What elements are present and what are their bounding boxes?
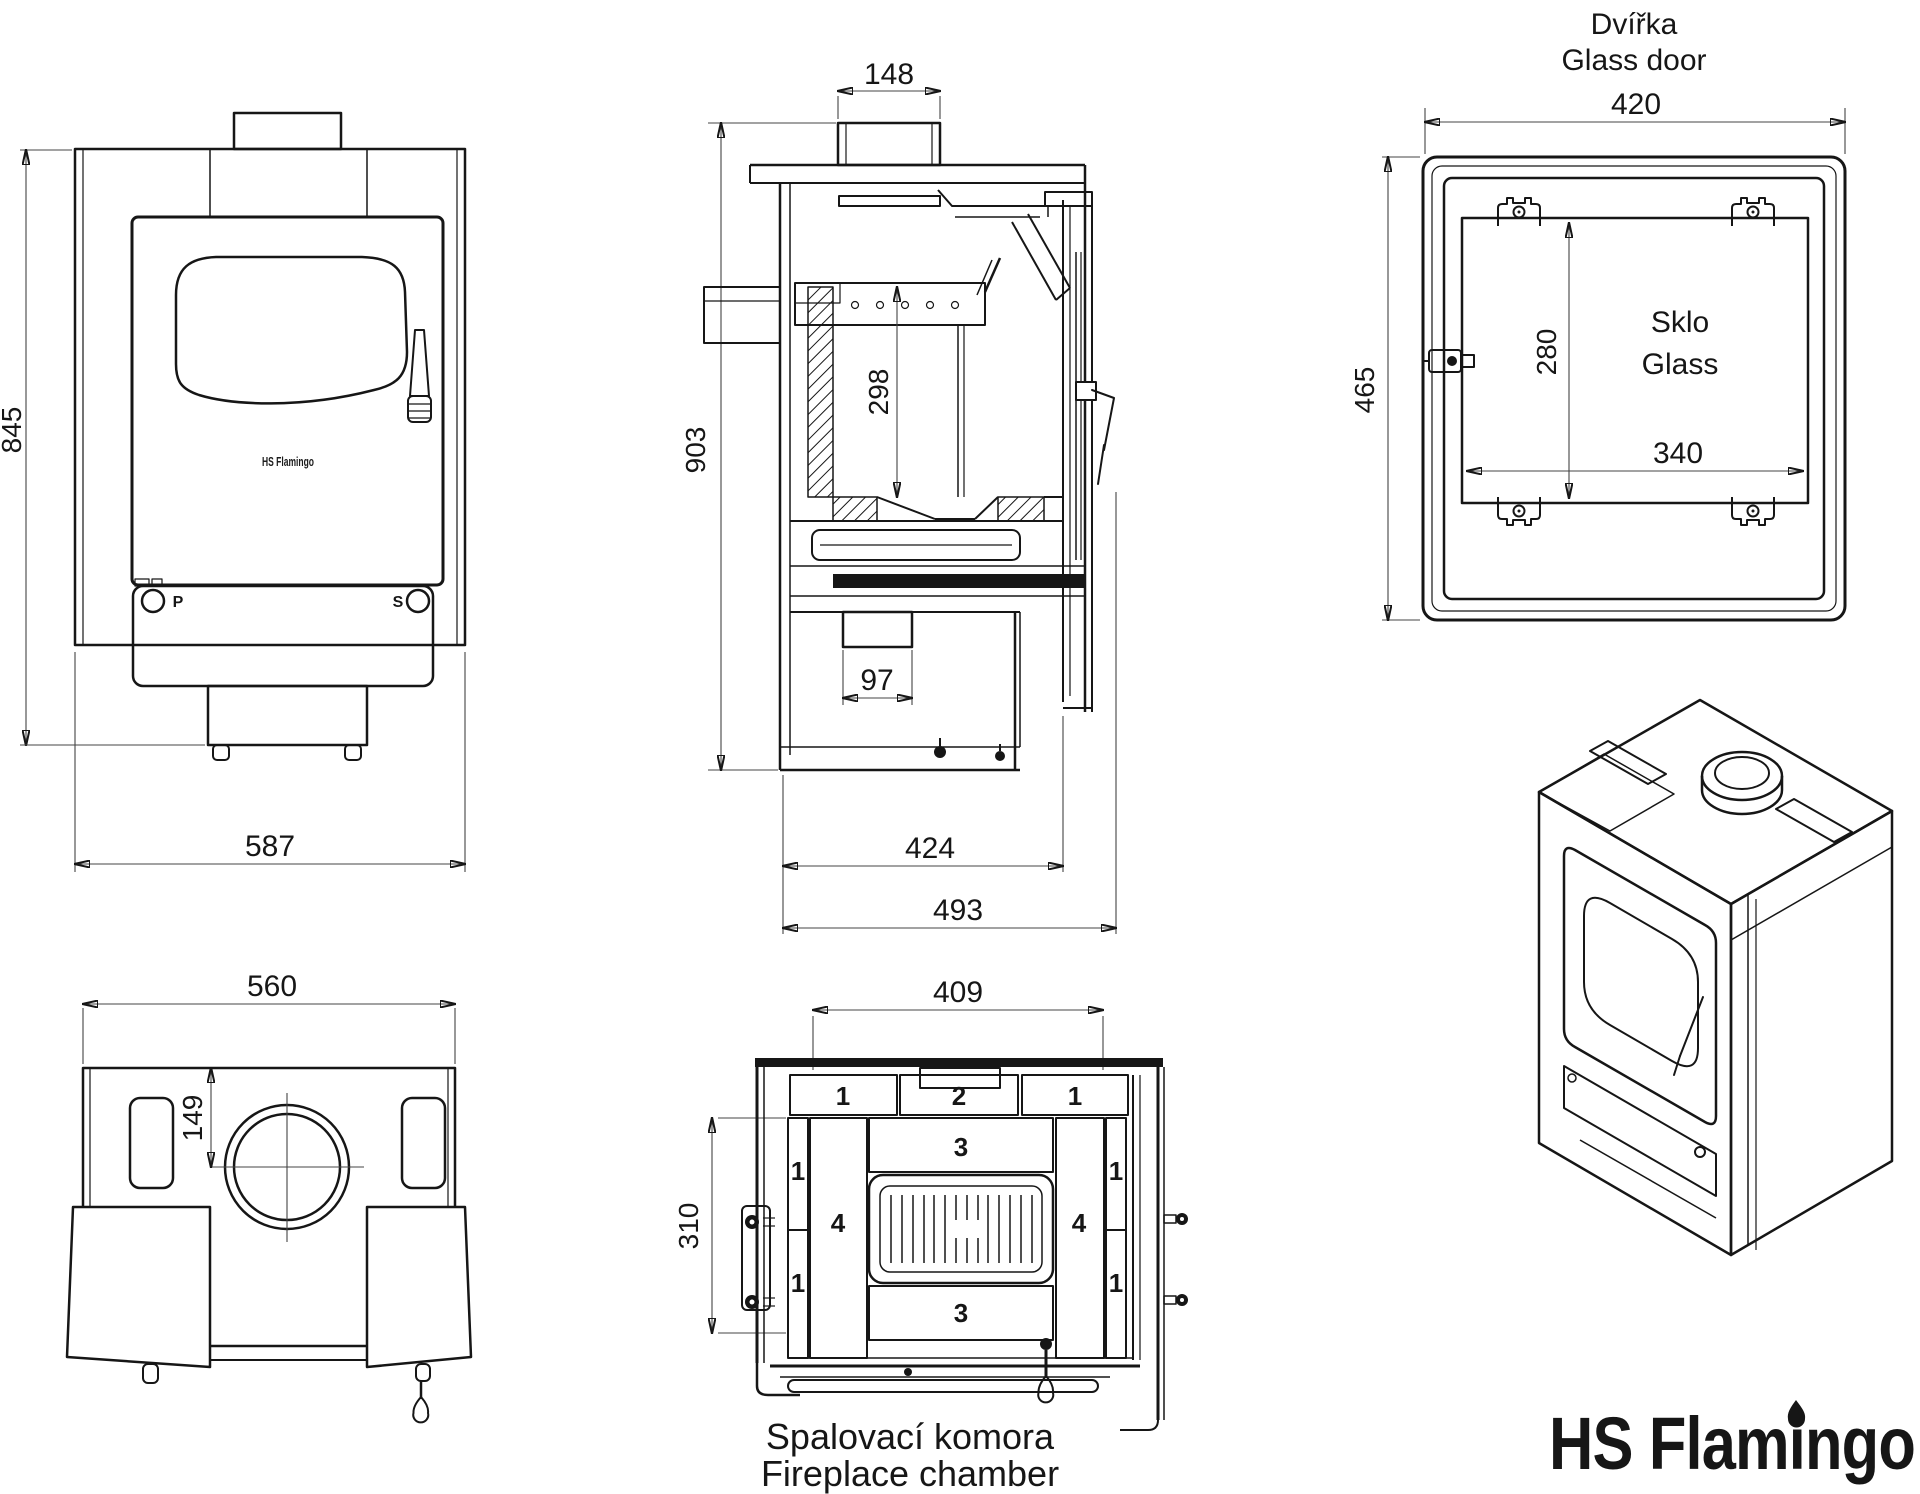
front-chimney bbox=[234, 113, 341, 149]
iso-view bbox=[1539, 700, 1892, 1255]
hanging-key bbox=[413, 1397, 428, 1422]
dim-chamber-height: 310 bbox=[673, 1203, 704, 1250]
glass-label-en: Glass bbox=[1642, 348, 1719, 381]
glass-clip bbox=[1732, 198, 1774, 226]
brick-cell bbox=[788, 1118, 808, 1358]
section-chimney bbox=[838, 123, 940, 165]
iso-top-face bbox=[1539, 700, 1892, 904]
dim-front-width: 587 bbox=[245, 830, 295, 863]
dim-section-height: 903 bbox=[680, 427, 711, 474]
iso-door bbox=[1564, 848, 1716, 1124]
iso-right-face bbox=[1731, 811, 1892, 1255]
iso-vent-right bbox=[1776, 799, 1852, 842]
brick-cell bbox=[810, 1118, 867, 1358]
door-latch bbox=[1423, 350, 1474, 372]
chamber-view: 409 310 1 2 1 1 1 4 3 3 4 1 1 Spalovací … bbox=[673, 976, 1188, 1494]
top-vent-left bbox=[130, 1098, 173, 1188]
knob-label-s: S bbox=[393, 594, 404, 611]
chamber-caption-en: Fireplace chamber bbox=[761, 1453, 1059, 1494]
side-panel-right bbox=[367, 1207, 471, 1367]
drawing-canvas: 845 587 HS Flamingo P S 148 903 bbox=[0, 0, 1920, 1494]
dim-flue-width: 148 bbox=[864, 58, 914, 91]
brand-logo: HS Flamingo bbox=[1549, 1396, 1915, 1485]
glass-label-cs: Sklo bbox=[1651, 306, 1709, 339]
dim-glass-height: 280 bbox=[1531, 329, 1562, 376]
iso-handle bbox=[1680, 997, 1703, 1056]
dim-door-width: 420 bbox=[1611, 88, 1661, 121]
dim-front-height: 845 bbox=[0, 407, 27, 454]
svg-text:2: 2 bbox=[952, 1081, 966, 1111]
side-panel-left bbox=[67, 1207, 210, 1367]
svg-text:1: 1 bbox=[1068, 1081, 1082, 1111]
svg-text:4: 4 bbox=[831, 1208, 846, 1238]
svg-text:1: 1 bbox=[836, 1081, 850, 1111]
svg-text:1: 1 bbox=[1109, 1268, 1123, 1298]
secondary-air-knob bbox=[407, 590, 429, 612]
door-title-en: Glass door bbox=[1561, 44, 1706, 77]
dim-inner-depth: 424 bbox=[905, 832, 955, 865]
svg-text:1: 1 bbox=[791, 1268, 805, 1298]
glass-door-view: Dvířka Glass door 420 465 280 340 Sklo G… bbox=[1349, 8, 1845, 620]
knob-label-p: P bbox=[173, 594, 184, 611]
front-door bbox=[132, 217, 443, 585]
front-door-handle bbox=[410, 330, 429, 396]
dim-depth: 493 bbox=[933, 894, 983, 927]
rear-firebrick bbox=[808, 287, 833, 497]
front-pedestal bbox=[208, 686, 367, 745]
dim-top-width: 560 bbox=[247, 970, 297, 1003]
chamber-caption-cs: Spalovací komora bbox=[766, 1416, 1055, 1457]
front-view: 845 587 HS Flamingo P S bbox=[0, 113, 465, 872]
brand-logo-text: HS Flamingo bbox=[1549, 1402, 1915, 1485]
svg-text:4: 4 bbox=[1072, 1208, 1087, 1238]
brick-cell bbox=[1056, 1118, 1104, 1358]
section-view: 148 903 298 97 bbox=[680, 58, 1116, 934]
door-frame bbox=[1423, 157, 1845, 620]
dim-outlet-width: 97 bbox=[860, 664, 893, 697]
door-logo: HS Flamingo bbox=[262, 454, 314, 469]
door-glass bbox=[1462, 218, 1808, 503]
door-title-cs: Dvířka bbox=[1591, 8, 1678, 41]
svg-text:3: 3 bbox=[954, 1132, 968, 1162]
svg-text:1: 1 bbox=[1109, 1156, 1123, 1186]
glass-clip bbox=[1498, 198, 1540, 226]
brick-cell bbox=[1106, 1118, 1126, 1358]
primary-air-knob bbox=[142, 590, 164, 612]
dim-glass-width: 340 bbox=[1653, 437, 1703, 470]
glass-clip bbox=[1498, 497, 1540, 525]
svg-text:3: 3 bbox=[954, 1298, 968, 1328]
dim-chamber-width: 409 bbox=[933, 976, 983, 1009]
iso-glass bbox=[1584, 898, 1698, 1066]
bottom-outlet bbox=[843, 612, 912, 647]
rear-outlet-cover bbox=[704, 287, 780, 343]
top-view: 560 149 bbox=[67, 970, 471, 1422]
dim-door-height: 465 bbox=[1349, 367, 1380, 414]
iso-vent-left bbox=[1590, 741, 1666, 784]
svg-text:1: 1 bbox=[791, 1156, 805, 1186]
dim-flue-offset: 149 bbox=[177, 1095, 208, 1142]
glass-clip bbox=[1732, 497, 1774, 525]
dim-firebox-height: 298 bbox=[863, 369, 894, 416]
top-vent-right bbox=[402, 1098, 445, 1188]
iso-front-face bbox=[1539, 792, 1731, 1255]
front-door-glass bbox=[176, 257, 407, 403]
iso-flue-collar bbox=[1702, 752, 1782, 800]
